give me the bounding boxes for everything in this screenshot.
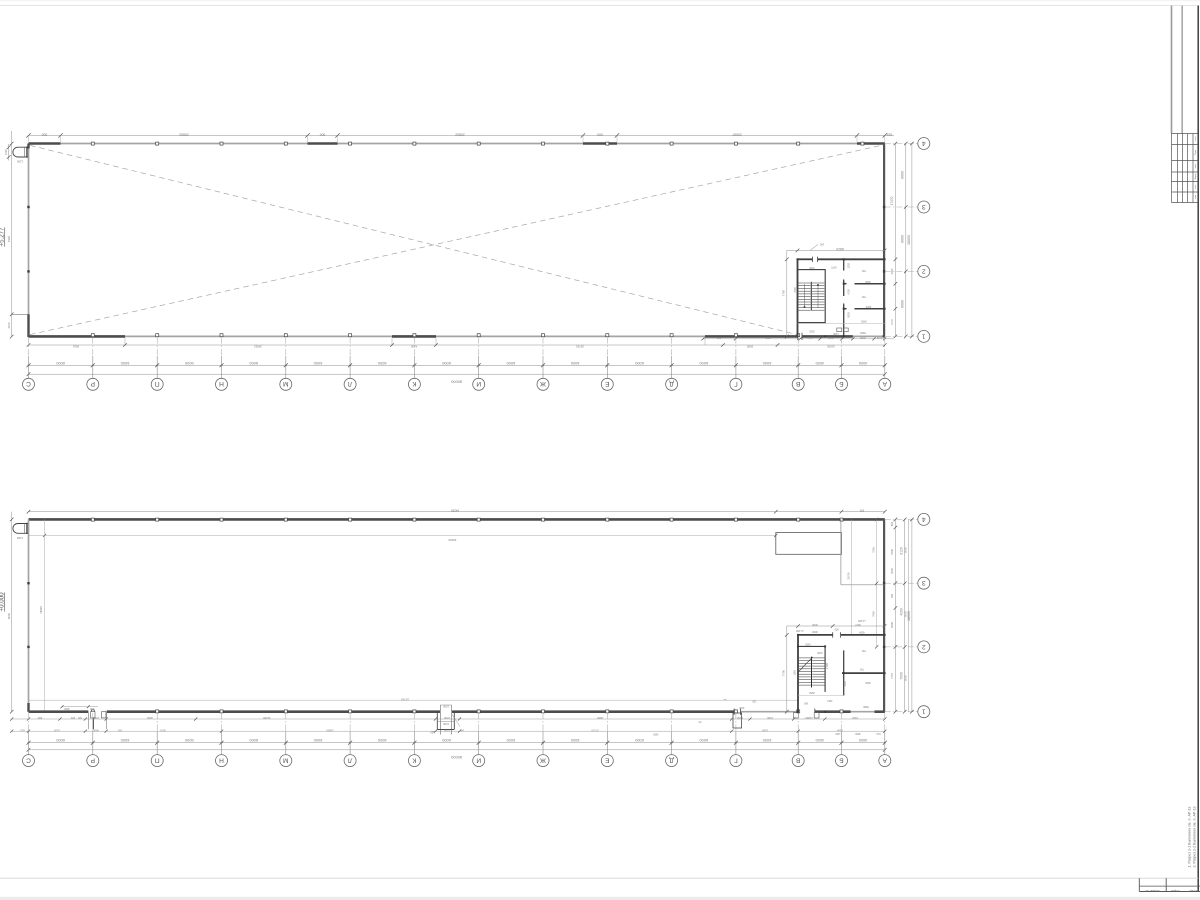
svg-text:6000: 6000 xyxy=(441,738,450,743)
svg-text:1100: 1100 xyxy=(807,716,813,720)
svg-text:900: 900 xyxy=(320,133,326,137)
svg-text:2470: 2470 xyxy=(831,266,837,269)
svg-text:1900: 1900 xyxy=(737,716,743,720)
svg-text:6000: 6000 xyxy=(901,235,905,243)
svg-text:6000: 6000 xyxy=(313,361,322,366)
svg-text:6000: 6000 xyxy=(377,361,386,366)
svg-text:8820: 8820 xyxy=(836,247,844,251)
svg-text:+0.000: +0.000 xyxy=(0,592,5,612)
svg-text:1364: 1364 xyxy=(827,699,833,702)
svg-text:300: 300 xyxy=(891,593,894,598)
svg-text:300: 300 xyxy=(117,728,122,732)
svg-text:1100: 1100 xyxy=(835,732,841,735)
svg-text:Б: Б xyxy=(839,756,843,763)
svg-text:1031: 1031 xyxy=(807,336,813,339)
svg-text:1100: 1100 xyxy=(17,159,23,163)
svg-text:54250: 54250 xyxy=(451,509,459,513)
svg-text:8980: 8980 xyxy=(863,705,869,708)
svg-text:29862: 29862 xyxy=(455,133,465,137)
svg-text:4: 4 xyxy=(922,139,926,146)
svg-text:700: 700 xyxy=(859,668,864,671)
svg-text:7700: 7700 xyxy=(781,289,785,296)
svg-text:29862: 29862 xyxy=(179,133,189,137)
svg-text:80000: 80000 xyxy=(450,755,462,760)
svg-text:7700: 7700 xyxy=(781,669,785,676)
svg-text:4300: 4300 xyxy=(900,608,904,616)
svg-text:6000: 6000 xyxy=(634,361,643,366)
svg-text:1500: 1500 xyxy=(4,149,8,155)
svg-text:7500: 7500 xyxy=(890,549,894,555)
svg-text:631: 631 xyxy=(886,133,892,137)
svg-text:6000: 6000 xyxy=(634,738,643,743)
svg-text:6000: 6000 xyxy=(699,738,708,743)
svg-text:3200: 3200 xyxy=(147,716,153,720)
svg-text:2330: 2330 xyxy=(890,268,894,274)
svg-text:2952: 2952 xyxy=(809,330,815,333)
svg-text:4100: 4100 xyxy=(410,345,417,349)
svg-text:6000: 6000 xyxy=(184,738,193,743)
svg-text:975: 975 xyxy=(716,336,721,339)
svg-text:306: 306 xyxy=(42,133,48,137)
svg-text:+0.150: +0.150 xyxy=(795,629,804,633)
svg-text:Д: Д xyxy=(669,380,674,387)
svg-text:В: В xyxy=(795,756,800,763)
svg-text:31050: 31050 xyxy=(263,716,271,720)
svg-text:Р: Р xyxy=(90,380,95,387)
svg-text:В: В xyxy=(795,380,800,387)
svg-text:4000: 4000 xyxy=(815,361,824,366)
svg-text:1395: 1395 xyxy=(794,670,797,676)
svg-text:8980: 8980 xyxy=(860,331,866,334)
svg-text:1000: 1000 xyxy=(848,263,851,269)
svg-text:+4.200: +4.200 xyxy=(857,619,866,623)
svg-text:20800: 20800 xyxy=(326,728,334,732)
svg-text:И: И xyxy=(476,380,481,387)
svg-text:3: 3 xyxy=(922,203,926,210)
svg-text:Л: Л xyxy=(348,756,352,763)
svg-text:6000: 6000 xyxy=(441,361,450,366)
svg-text:6000: 6000 xyxy=(506,738,515,743)
svg-text:7500: 7500 xyxy=(794,287,797,293)
svg-text:Согл: Согл xyxy=(1195,136,1197,142)
svg-text:600: 600 xyxy=(89,707,94,710)
svg-text:6000: 6000 xyxy=(901,171,905,179)
svg-text:К: К xyxy=(412,756,416,763)
svg-text:1000: 1000 xyxy=(444,728,450,732)
svg-text:6000: 6000 xyxy=(699,361,708,366)
svg-text:5080: 5080 xyxy=(746,345,753,349)
svg-text:3020: 3020 xyxy=(865,681,871,684)
svg-text:1200: 1200 xyxy=(817,651,823,654)
svg-text:3: 3 xyxy=(922,579,926,586)
svg-text:Н: Н xyxy=(219,756,224,763)
svg-text:300: 300 xyxy=(77,716,82,719)
svg-text:6000: 6000 xyxy=(904,675,908,681)
svg-text:Ж: Ж xyxy=(540,756,546,763)
svg-text:6000: 6000 xyxy=(249,361,258,366)
svg-text:1000: 1000 xyxy=(444,716,450,720)
svg-text:2952: 2952 xyxy=(809,691,815,694)
svg-text:Изм: Изм xyxy=(1195,194,1197,199)
svg-text:700: 700 xyxy=(861,269,866,272)
svg-text:3000: 3000 xyxy=(812,630,818,633)
svg-text:Н: Н xyxy=(219,380,224,387)
svg-text:2400: 2400 xyxy=(861,320,867,323)
svg-text:6000: 6000 xyxy=(570,361,579,366)
svg-text:1100: 1100 xyxy=(17,536,23,540)
svg-text:24852: 24852 xyxy=(254,345,262,349)
svg-text:1900: 1900 xyxy=(653,732,659,735)
svg-text:830: 830 xyxy=(859,509,864,513)
svg-text:1. Разрез 1-1 Выполнен см. л.: 1. Разрез 1-1 Выполнен см. л. АР-13 xyxy=(1188,807,1192,868)
svg-text:600: 600 xyxy=(37,716,42,720)
svg-text:2,500: 2,500 xyxy=(826,662,829,669)
svg-text:1000: 1000 xyxy=(443,704,449,708)
svg-text:4000: 4000 xyxy=(858,361,867,366)
svg-text:1910: 1910 xyxy=(852,716,858,720)
svg-text:4000: 4000 xyxy=(815,738,824,743)
svg-text:4527: 4527 xyxy=(855,623,861,627)
svg-text:6000: 6000 xyxy=(313,738,322,743)
svg-text:150: 150 xyxy=(430,731,435,734)
svg-text:1000: 1000 xyxy=(93,716,99,720)
svg-text:6000: 6000 xyxy=(184,361,193,366)
svg-text:600: 600 xyxy=(803,702,808,705)
svg-text:5400: 5400 xyxy=(7,235,11,242)
svg-text:1500: 1500 xyxy=(54,728,60,732)
svg-text:6000: 6000 xyxy=(762,361,771,366)
svg-text:И: И xyxy=(476,756,481,763)
svg-text:1900: 1900 xyxy=(762,728,768,732)
svg-text:1000: 1000 xyxy=(443,722,449,726)
svg-text:700: 700 xyxy=(861,295,866,298)
svg-text:900: 900 xyxy=(597,133,603,137)
svg-text:2100: 2100 xyxy=(7,322,11,329)
svg-text:3070: 3070 xyxy=(160,728,166,732)
svg-text:П: П xyxy=(155,380,160,387)
svg-text:6000: 6000 xyxy=(570,738,579,743)
svg-text:100: 100 xyxy=(819,243,824,246)
svg-text:2: 2 xyxy=(922,267,926,274)
svg-text:17470: 17470 xyxy=(890,196,894,205)
svg-text:1950: 1950 xyxy=(805,643,811,646)
svg-text:900: 900 xyxy=(70,716,75,720)
svg-text:51750: 51750 xyxy=(401,697,409,701)
svg-text:4190: 4190 xyxy=(848,289,851,295)
svg-text:1014: 1014 xyxy=(876,336,882,339)
svg-text:2200: 2200 xyxy=(865,280,871,283)
svg-text:4000: 4000 xyxy=(64,707,70,710)
svg-text:№док: №док xyxy=(1194,174,1197,180)
svg-text:Е: Е xyxy=(605,380,610,387)
svg-text:7770: 7770 xyxy=(890,673,894,679)
svg-text:29987: 29987 xyxy=(732,133,742,137)
svg-text:2: 2 xyxy=(922,643,926,650)
svg-text:7900: 7900 xyxy=(871,611,875,617)
svg-text:Стадия: Стадия xyxy=(1170,889,1179,893)
svg-text:П: П xyxy=(155,756,160,763)
svg-text:9500: 9500 xyxy=(848,312,851,318)
svg-text:Б: Б xyxy=(839,380,843,387)
svg-text:30700: 30700 xyxy=(846,572,850,580)
svg-text:7500: 7500 xyxy=(871,547,875,553)
svg-text:1500: 1500 xyxy=(809,266,815,269)
svg-text:6000: 6000 xyxy=(55,738,64,743)
svg-text:Г: Г xyxy=(734,756,738,763)
svg-text:6000: 6000 xyxy=(249,738,258,743)
svg-text:С: С xyxy=(26,756,31,763)
svg-text:18000: 18000 xyxy=(907,235,911,245)
svg-text:2000: 2000 xyxy=(860,336,866,339)
svg-text:1560: 1560 xyxy=(767,716,773,720)
svg-text:М: М xyxy=(283,756,289,763)
svg-text:6000: 6000 xyxy=(904,547,908,553)
svg-text:Лист: Лист xyxy=(1195,164,1197,169)
svg-text:18000: 18000 xyxy=(907,611,911,621)
svg-text:Ж: Ж xyxy=(540,380,546,387)
svg-text:900: 900 xyxy=(834,628,839,631)
svg-text:6000: 6000 xyxy=(377,738,386,743)
svg-text:614: 614 xyxy=(876,732,881,735)
svg-text:6000: 6000 xyxy=(120,738,129,743)
svg-text:Г: Г xyxy=(734,380,738,387)
svg-text:6000: 6000 xyxy=(762,738,771,743)
svg-text:4000: 4000 xyxy=(93,728,99,732)
svg-text:2. Разрез 2-2 Выполнен см. л.: 2. Разрез 2-2 Выполнен см. л. АР-13 xyxy=(1193,807,1197,868)
svg-text:30000: 30000 xyxy=(448,538,456,542)
svg-text:5800: 5800 xyxy=(765,336,771,339)
svg-text:1400: 1400 xyxy=(833,332,839,335)
svg-text:9016: 9016 xyxy=(72,345,79,349)
svg-text:Формат А4: Формат А4 xyxy=(1145,889,1160,893)
svg-text:Подп: Подп xyxy=(1195,149,1197,155)
svg-text:4: 4 xyxy=(922,515,926,522)
svg-text:700: 700 xyxy=(861,649,866,652)
svg-text:+5.277: +5.277 xyxy=(0,227,5,247)
svg-text:2500: 2500 xyxy=(890,568,894,574)
svg-text:4000: 4000 xyxy=(890,622,894,628)
svg-text:3090: 3090 xyxy=(812,623,818,627)
svg-text:80000: 80000 xyxy=(450,380,462,385)
svg-text:1000: 1000 xyxy=(739,706,745,709)
svg-text:18000: 18000 xyxy=(39,606,43,614)
svg-text:4254: 4254 xyxy=(859,631,865,634)
svg-text:6000: 6000 xyxy=(506,361,515,366)
svg-text:27170: 27170 xyxy=(591,728,599,732)
svg-text:К: К xyxy=(412,380,416,387)
svg-text:Р: Р xyxy=(90,756,95,763)
svg-text:А: А xyxy=(882,756,887,763)
svg-text:830: 830 xyxy=(890,521,894,526)
svg-text:Л: Л xyxy=(348,380,352,387)
svg-text:613: 613 xyxy=(20,728,25,732)
svg-text:А: А xyxy=(882,380,887,387)
svg-text:7000: 7000 xyxy=(900,672,904,680)
svg-text:1: 1 xyxy=(922,708,926,715)
svg-text:Копир.: Копир. xyxy=(1189,889,1197,893)
svg-text:26752: 26752 xyxy=(576,345,584,349)
svg-text:2000: 2000 xyxy=(828,336,834,339)
svg-text:Е: Е xyxy=(605,756,610,763)
svg-text:6000: 6000 xyxy=(55,361,64,366)
svg-text:М: М xyxy=(283,380,289,387)
svg-text:9680: 9680 xyxy=(597,716,603,720)
svg-text:4000: 4000 xyxy=(855,732,861,735)
svg-text:9000: 9000 xyxy=(7,612,11,619)
svg-text:2770: 2770 xyxy=(890,319,894,325)
svg-text:1500: 1500 xyxy=(844,681,847,687)
svg-text:6000: 6000 xyxy=(120,361,129,366)
svg-text:2200: 2200 xyxy=(865,305,871,308)
svg-text:Д: Д xyxy=(669,756,674,763)
svg-text:1: 1 xyxy=(922,332,926,339)
svg-text:6120: 6120 xyxy=(900,547,904,555)
svg-text:6000: 6000 xyxy=(901,300,905,308)
svg-text:700: 700 xyxy=(752,700,757,703)
svg-text:4000: 4000 xyxy=(858,738,867,743)
svg-text:10000: 10000 xyxy=(827,345,835,349)
svg-text:С: С xyxy=(26,380,31,387)
